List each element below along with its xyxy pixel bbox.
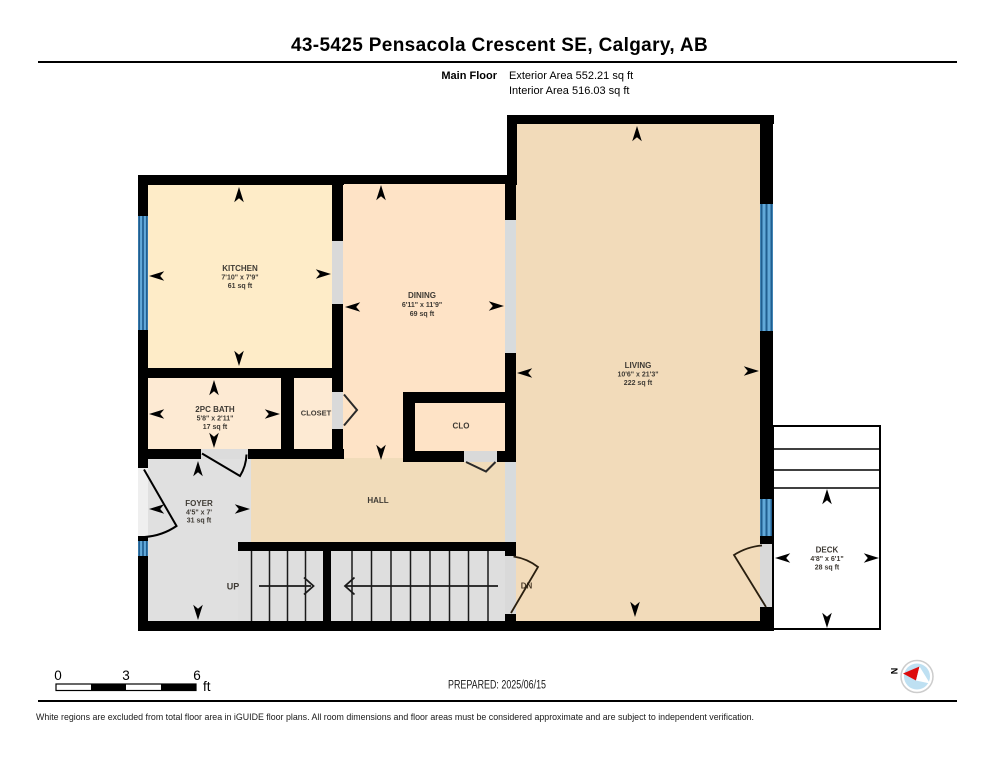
svg-text:HALL: HALL	[367, 496, 388, 505]
svg-text:61 sq ft: 61 sq ft	[228, 283, 253, 290]
svg-text:7'10" x 7'9": 7'10" x 7'9"	[221, 275, 258, 282]
svg-text:LIVING: LIVING	[625, 361, 652, 370]
svg-text:N: N	[890, 668, 900, 675]
svg-text:CLOSET: CLOSET	[301, 409, 332, 418]
svg-text:17 sq ft: 17 sq ft	[203, 424, 228, 431]
svg-text:2PC BATH: 2PC BATH	[195, 405, 235, 414]
svg-text:3: 3	[122, 668, 130, 683]
svg-text:69 sq ft: 69 sq ft	[410, 311, 435, 318]
svg-text:ft: ft	[203, 679, 211, 694]
svg-text:31 sq ft: 31 sq ft	[187, 518, 212, 525]
svg-text:4'8" x 6'1": 4'8" x 6'1"	[810, 556, 843, 563]
svg-text:222 sq ft: 222 sq ft	[624, 380, 653, 387]
svg-text:DECK: DECK	[816, 546, 839, 555]
svg-text:CLO: CLO	[453, 422, 470, 431]
svg-text:6'11" x 11'9": 6'11" x 11'9"	[402, 302, 442, 309]
svg-text:5'8" x 2'11": 5'8" x 2'11"	[197, 416, 234, 423]
svg-text:PREPARED: 2025/06/15: PREPARED: 2025/06/15	[448, 680, 546, 692]
svg-text:10'6" x 21'3": 10'6" x 21'3"	[617, 372, 658, 379]
svg-text:UP: UP	[227, 582, 240, 592]
svg-text:6: 6	[193, 668, 201, 683]
svg-text:28 sq ft: 28 sq ft	[815, 565, 840, 572]
svg-text:0: 0	[54, 668, 62, 683]
svg-text:White regions are excluded fro: White regions are excluded from total fl…	[36, 712, 754, 722]
svg-text:DINING: DINING	[408, 291, 436, 300]
svg-text:FOYER: FOYER	[185, 499, 213, 508]
svg-text:4'5" x 7': 4'5" x 7'	[186, 510, 212, 517]
svg-text:KITCHEN: KITCHEN	[222, 264, 258, 273]
